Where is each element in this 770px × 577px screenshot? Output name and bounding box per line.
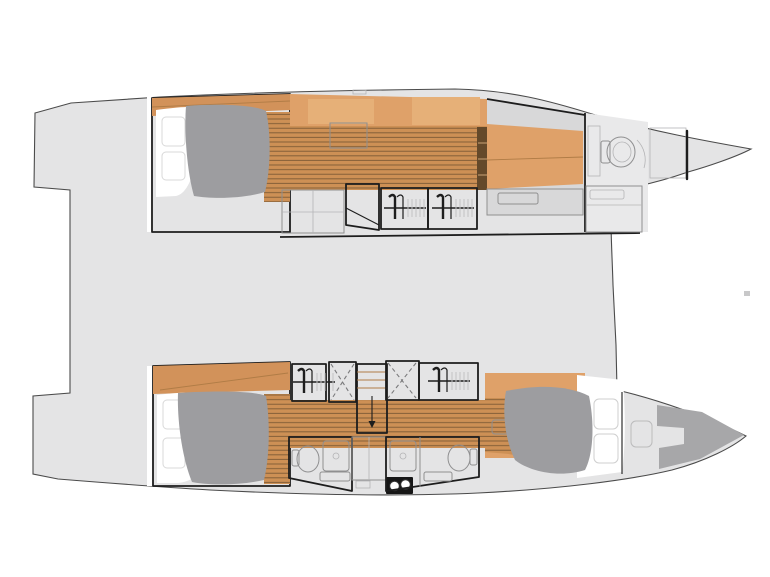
dressing-wood-floor (487, 124, 583, 189)
bed-duvet (185, 105, 269, 198)
bed-duvet (504, 387, 592, 474)
pillow (162, 152, 185, 180)
starboard-aft-cabin (147, 362, 290, 486)
pillow (162, 117, 185, 146)
port-forward-dressing (487, 99, 585, 215)
pillow (594, 434, 618, 463)
bed-duvet (178, 392, 269, 485)
floor-plan-svg (0, 0, 770, 577)
cabinet-top (308, 99, 374, 124)
head-floor (585, 113, 648, 232)
bow-fitting (744, 291, 750, 296)
cabinet-top (412, 97, 480, 125)
headboard-shelf (153, 362, 290, 394)
pillow (594, 399, 618, 429)
corridor-plank-floor (290, 126, 487, 190)
catamaran-floor-plan (0, 0, 770, 577)
